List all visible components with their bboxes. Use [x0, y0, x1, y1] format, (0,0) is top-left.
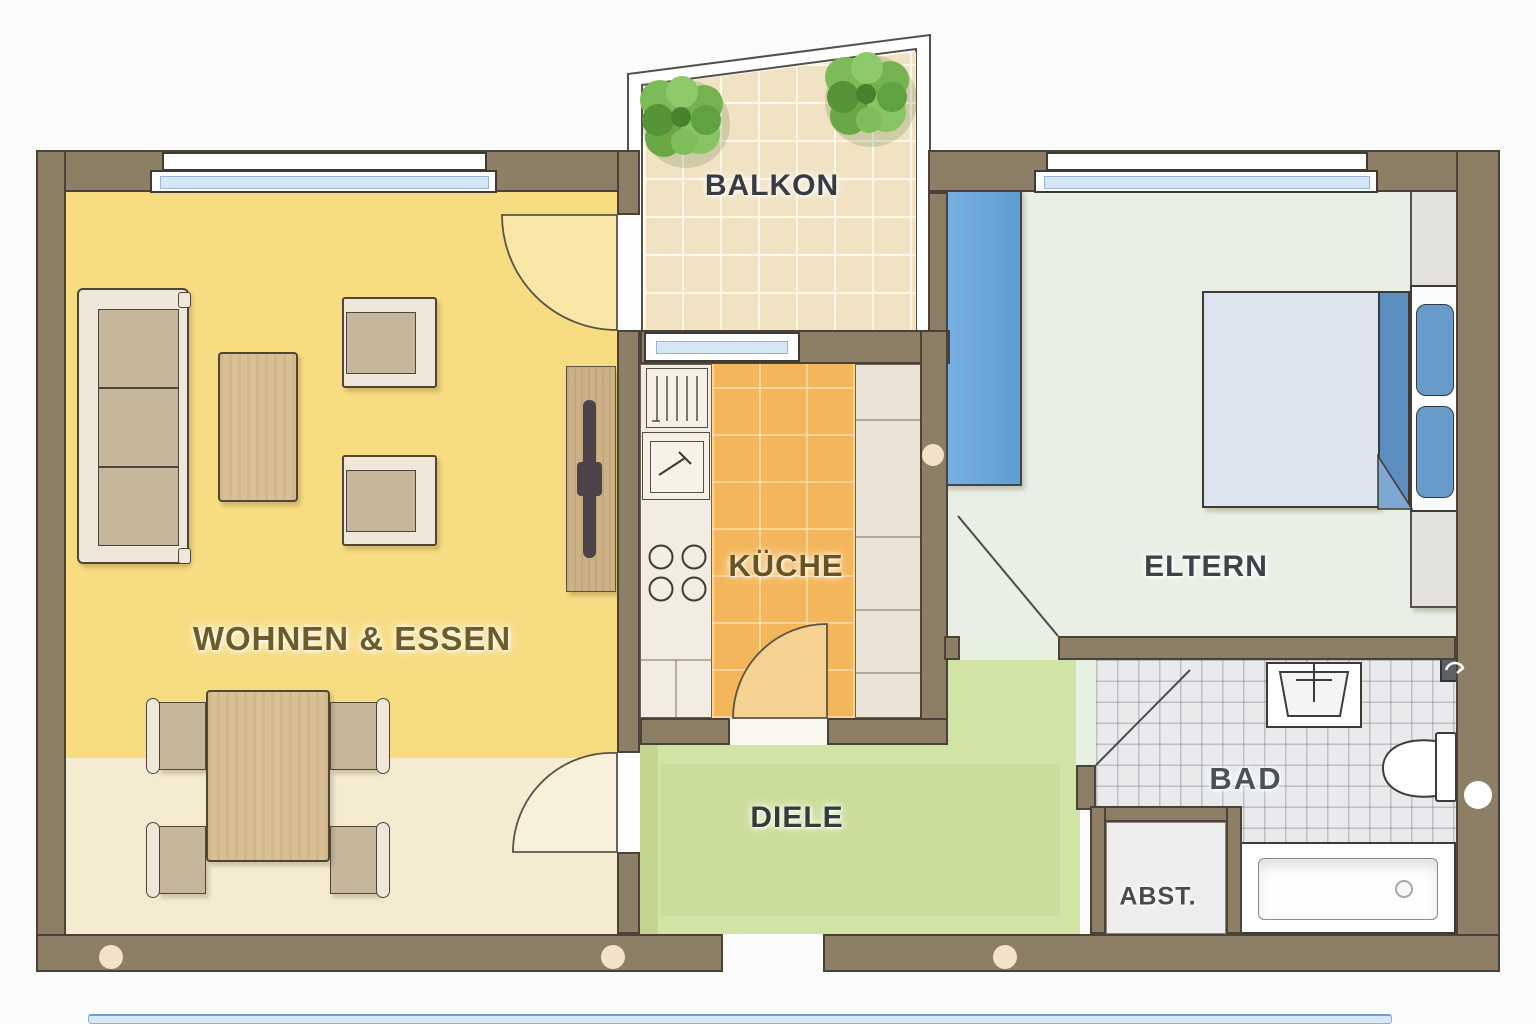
- window: [644, 332, 800, 362]
- doorway-kueche: [730, 718, 827, 745]
- doorway-bad: [1076, 660, 1096, 765]
- tv-stand: [577, 462, 602, 496]
- doorway-wohnen-diele: [617, 753, 640, 852]
- wall-dot: [922, 444, 944, 466]
- wall-dot: [99, 945, 123, 969]
- room-label-balkon: BALKON: [705, 169, 839, 203]
- washbasin-unit: [1266, 662, 1362, 728]
- dining-chair: [158, 702, 206, 770]
- closet: [1410, 190, 1458, 292]
- wall-diele-bad: [1076, 765, 1096, 810]
- sofa-armrest-tab: [178, 292, 191, 308]
- room-label-abstellraum: ABST.: [1119, 883, 1196, 912]
- wall-kueche-bottom-right: [827, 718, 948, 745]
- wall-wohnen-diele: [617, 852, 640, 934]
- dining-chair: [330, 702, 378, 770]
- room-label-wohnen-essen: WOHNEN & ESSEN: [193, 620, 511, 658]
- wall-eltern-bad: [1058, 636, 1456, 660]
- bathtub-basin: [1258, 858, 1438, 920]
- window: [1046, 152, 1368, 171]
- window: [162, 152, 487, 171]
- wall-dot: [601, 945, 625, 969]
- wall-dot: [993, 945, 1017, 969]
- dining-chair-backrest: [146, 822, 160, 898]
- dish-rack: [646, 368, 708, 428]
- window: [150, 170, 497, 193]
- wall-eltern-door-stub: [944, 636, 960, 660]
- floorplan-canvas: BALKON WOHNEN & ESSEN KÜCHE ELTERN DIELE…: [0, 0, 1536, 1024]
- armchair: [342, 297, 437, 388]
- pillow: [1416, 304, 1454, 396]
- doorway-eltern: [960, 636, 1058, 660]
- wall-balkon-eltern: [928, 192, 948, 332]
- entrance-opening: [723, 934, 823, 972]
- wall-bottom-right: [823, 934, 1500, 972]
- double-bed-duvet: [1202, 291, 1380, 508]
- room-diele-floor-inner: [660, 764, 1060, 916]
- room-diele-floor-arm: [948, 660, 1080, 745]
- bottom-edge-strip: [88, 1014, 1392, 1024]
- room-label-kueche: KÜCHE: [728, 548, 843, 584]
- room-label-diele: DIELE: [750, 801, 843, 835]
- pillow: [1416, 406, 1454, 498]
- window: [1034, 170, 1378, 193]
- wall-kueche-bottom-left: [640, 718, 730, 745]
- dining-chair-backrest: [146, 698, 160, 774]
- room-diele-floor-edge: [640, 745, 658, 934]
- dining-chair: [158, 826, 206, 894]
- doorway-balcony: [617, 215, 640, 330]
- dining-chair-backrest: [376, 698, 390, 774]
- bed-blanket: [1378, 291, 1410, 508]
- armchair: [342, 455, 437, 546]
- nightstand: [1410, 510, 1458, 608]
- kitchen-counter-right: [855, 364, 922, 718]
- room-label-eltern: ELTERN: [1144, 550, 1268, 584]
- room-label-bad: BAD: [1209, 761, 1282, 797]
- wall-kueche-eltern: [920, 330, 948, 745]
- wall-abst-top: [1090, 806, 1242, 822]
- dining-table: [206, 690, 330, 862]
- dining-chair-backrest: [376, 822, 390, 898]
- wardrobe: [944, 188, 1022, 486]
- kitchen-sink-basin: [650, 441, 704, 493]
- wall-abst-right: [1226, 806, 1242, 934]
- wall-right: [1456, 150, 1500, 972]
- room-abst-floor: [1106, 822, 1226, 934]
- room-kueche-floor: [712, 364, 855, 718]
- wall-dot: [1464, 781, 1492, 809]
- dining-chair: [330, 826, 378, 894]
- sofa-armrest-tab: [178, 548, 191, 564]
- wall-abst-left: [1090, 806, 1106, 934]
- wall-left: [36, 150, 66, 972]
- sofa: [77, 288, 189, 564]
- wall-wohnen-right-upper: [617, 150, 640, 215]
- coffee-table: [218, 352, 298, 502]
- wall-wohnen-kueche: [617, 330, 640, 753]
